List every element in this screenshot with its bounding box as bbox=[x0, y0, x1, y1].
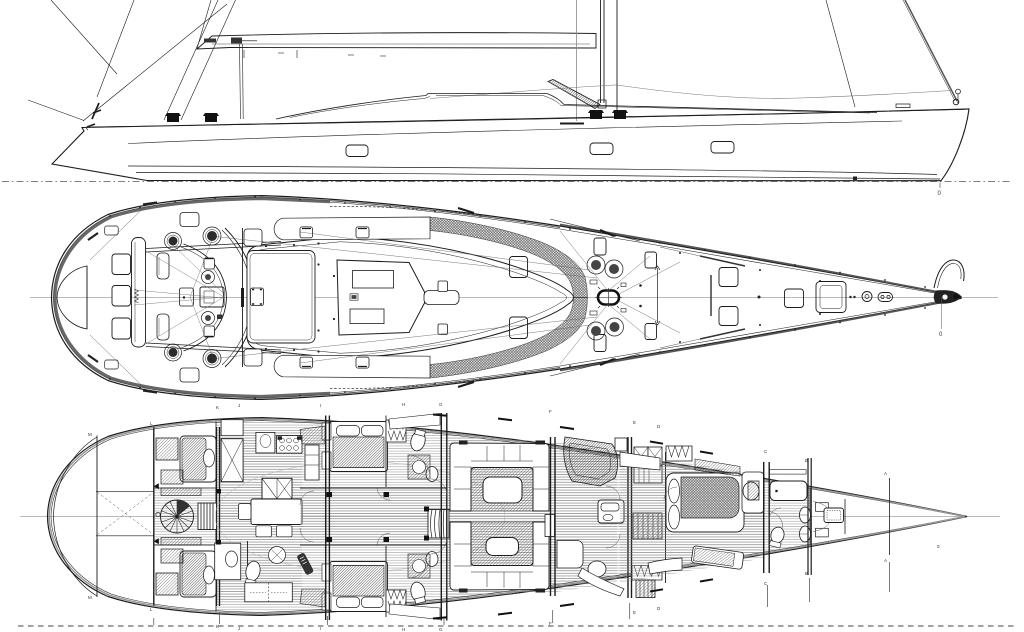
svg-text:E: E bbox=[633, 610, 636, 615]
svg-text:M: M bbox=[88, 432, 92, 437]
svg-text:H: H bbox=[402, 627, 405, 632]
svg-text:F: F bbox=[549, 621, 552, 626]
svg-text:L: L bbox=[150, 421, 153, 426]
svg-text:D: D bbox=[657, 424, 661, 429]
svg-text:J: J bbox=[238, 626, 240, 631]
svg-text:0: 0 bbox=[939, 332, 943, 338]
svg-text:L: L bbox=[150, 607, 153, 612]
svg-text:D: D bbox=[657, 606, 661, 611]
svg-text:F: F bbox=[549, 409, 552, 414]
svg-text:B: B bbox=[805, 571, 808, 576]
svg-text:B: B bbox=[805, 458, 808, 463]
svg-text:G: G bbox=[439, 402, 443, 407]
svg-text:J: J bbox=[238, 403, 240, 408]
svg-text:A: A bbox=[884, 471, 887, 476]
svg-text:0: 0 bbox=[937, 544, 940, 549]
svg-text:0: 0 bbox=[938, 191, 942, 197]
svg-text:M: M bbox=[88, 595, 92, 600]
svg-text:H: H bbox=[402, 402, 405, 407]
svg-text:I: I bbox=[320, 626, 321, 631]
svg-text:E: E bbox=[633, 420, 636, 425]
svg-text:I: I bbox=[320, 403, 321, 408]
svg-text:G: G bbox=[439, 627, 443, 632]
svg-text:K: K bbox=[216, 405, 219, 410]
svg-text:A: A bbox=[884, 558, 887, 563]
svg-text:C: C bbox=[764, 449, 768, 454]
